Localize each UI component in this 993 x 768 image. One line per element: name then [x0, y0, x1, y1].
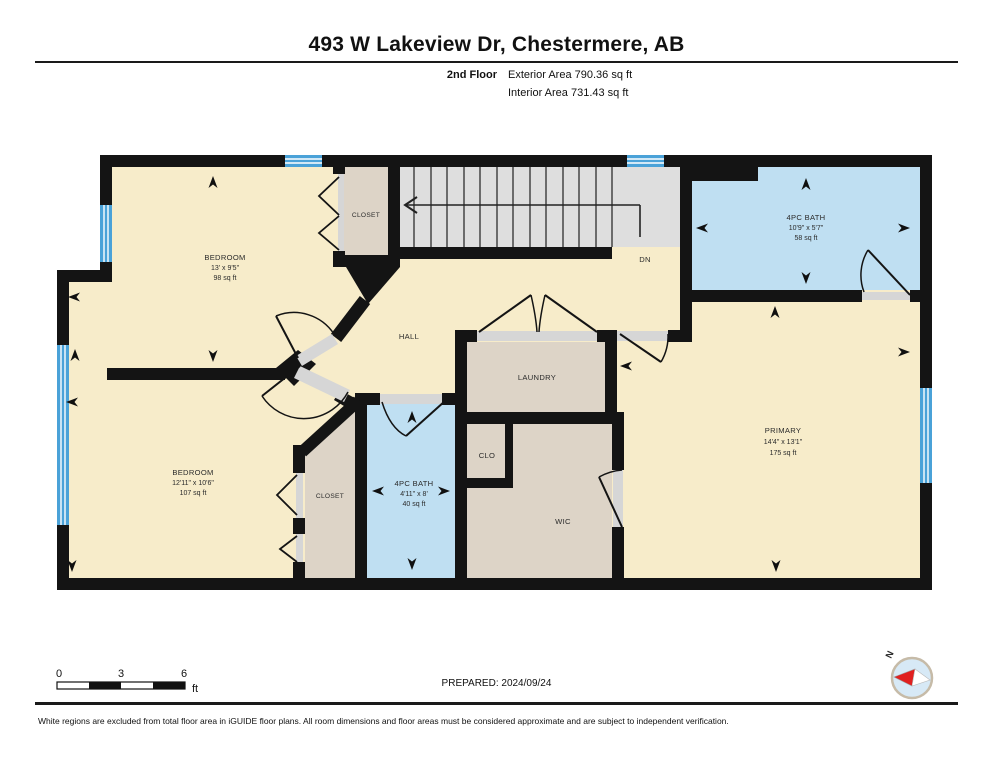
bath-top-label: 4PC BATH: [787, 213, 826, 222]
hall-label: HALL: [399, 332, 419, 341]
bedroom-top-area: 98 sq ft: [214, 275, 237, 282]
closet-bottom-label: CLOSET: [316, 493, 344, 500]
bedroom-top-label: BEDROOM: [204, 253, 245, 262]
bath-bottom-dims: 4'11" x 8': [400, 491, 428, 498]
floor-plan-svg: BEDROOM 13' x 9'5" 98 sq ft CLOSET DN 4P…: [0, 0, 993, 768]
primary-area: 175 sq ft: [770, 450, 797, 457]
bath-bottom-label: 4PC BATH: [395, 479, 434, 488]
stairwell: [398, 167, 680, 247]
clo-label: CLO: [479, 451, 496, 460]
closet-top-label: CLOSET: [352, 212, 380, 219]
bedroom-bottom-area: 107 sq ft: [180, 490, 207, 497]
bedroom-top-dims: 13' x 9'5": [211, 265, 240, 272]
footer-divider: [35, 702, 958, 705]
stairs-dn-label: DN: [639, 255, 651, 264]
bath-top-area: 58 sq ft: [795, 235, 818, 242]
laundry-label: LAUNDRY: [518, 373, 556, 382]
primary-label: PRIMARY: [765, 426, 802, 435]
compass-north-label: N: [884, 649, 897, 660]
primary-dims: 14'4" x 13'1": [764, 439, 803, 446]
bedroom-bottom-dims: 12'11" x 10'6": [172, 480, 214, 487]
closet-top: [343, 167, 388, 255]
floor-plan-page: { "header": { "title": "493 W Lakeview D…: [0, 0, 993, 768]
bath-top-dims: 10'9" x 5'7": [789, 225, 824, 232]
bath-bottom-area: 40 sq ft: [403, 501, 426, 508]
wic-label: WIC: [555, 517, 571, 526]
disclaimer-text: White regions are excluded from total fl…: [38, 716, 968, 726]
compass: N: [884, 649, 932, 698]
bedroom-bottom-label: BEDROOM: [172, 468, 213, 477]
prepared-date: PREPARED: 2024/09/24: [0, 678, 993, 689]
